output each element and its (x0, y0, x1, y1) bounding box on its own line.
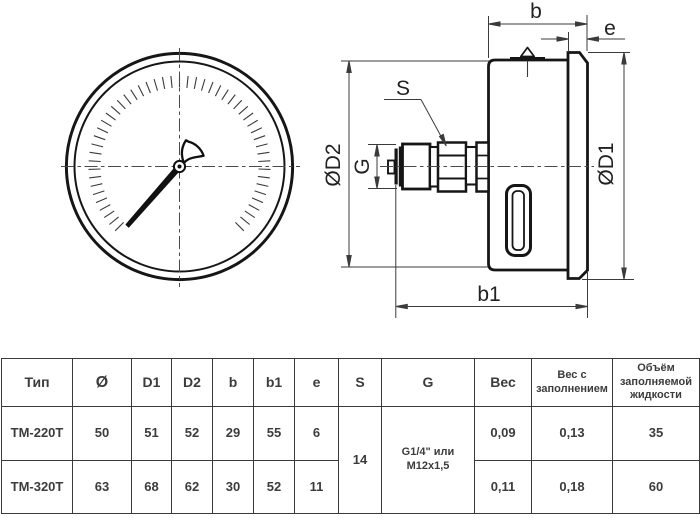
svg-text:S: S (396, 77, 410, 100)
svg-text:ØD1: ØD1 (595, 142, 618, 185)
svg-text:e: e (604, 17, 616, 40)
svg-text:ØD2: ØD2 (322, 143, 345, 186)
svg-text:b: b (530, 0, 542, 23)
svg-text:b1: b1 (477, 283, 500, 306)
svg-text:G: G (351, 158, 374, 174)
